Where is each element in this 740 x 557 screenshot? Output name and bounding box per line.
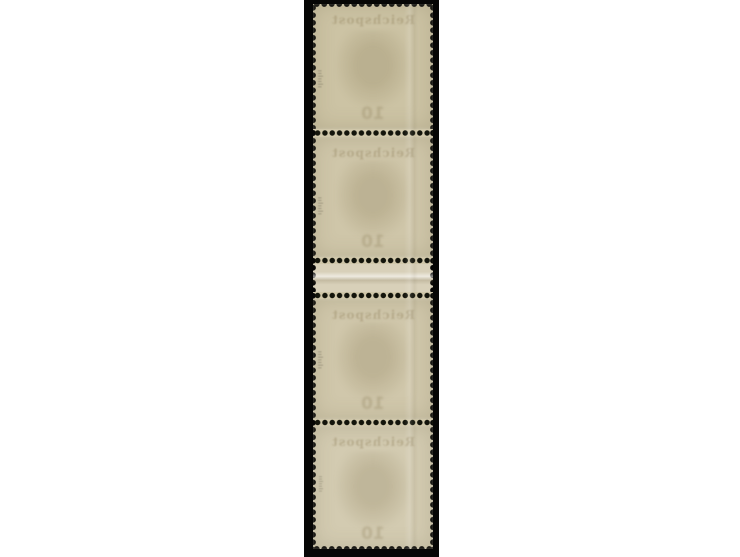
stamp-2: Reichspost 10 ıılıılı — [313, 137, 433, 257]
stamp-4: Reichspost 10 ıılıılı — [313, 426, 433, 549]
perforation-row — [313, 419, 433, 426]
perforation-row — [313, 292, 433, 299]
perforation-row — [313, 129, 433, 137]
expert-mark: ıılıılı — [316, 70, 323, 89]
showthrough-numeral: 10 — [313, 524, 433, 544]
stamp-strip: Reichspost 10 ıılıılı Reichspost 10 ıılı… — [313, 4, 433, 549]
expert-mark: ıılıılı — [316, 197, 323, 216]
showthrough-header: Reichspost — [313, 146, 433, 160]
showthrough-header: Reichspost — [313, 435, 433, 449]
perforation-row — [313, 257, 433, 264]
showthrough-numeral: 10 — [313, 232, 433, 252]
photo-canvas: Reichspost 10 ıılıılı Reichspost 10 ıılı… — [0, 0, 740, 557]
stamp-3: Reichspost 10 ıılıılı — [313, 299, 433, 419]
gutter-with-crease — [313, 264, 433, 292]
stamp-1: Reichspost 10 ıılıılı — [313, 4, 433, 129]
eagle-showthrough — [336, 322, 410, 400]
eagle-showthrough — [336, 160, 410, 238]
black-mount: Reichspost 10 ıılıılı Reichspost 10 ıılı… — [304, 0, 439, 557]
expert-mark: ıılıılı — [316, 351, 323, 370]
expert-mark: ıılıılı — [316, 476, 323, 493]
eagle-showthrough — [336, 451, 410, 529]
eagle-showthrough — [336, 30, 410, 108]
showthrough-numeral: 10 — [313, 104, 433, 124]
showthrough-header: Reichspost — [313, 13, 433, 27]
showthrough-header: Reichspost — [313, 308, 433, 322]
showthrough-numeral: 10 — [313, 394, 433, 414]
